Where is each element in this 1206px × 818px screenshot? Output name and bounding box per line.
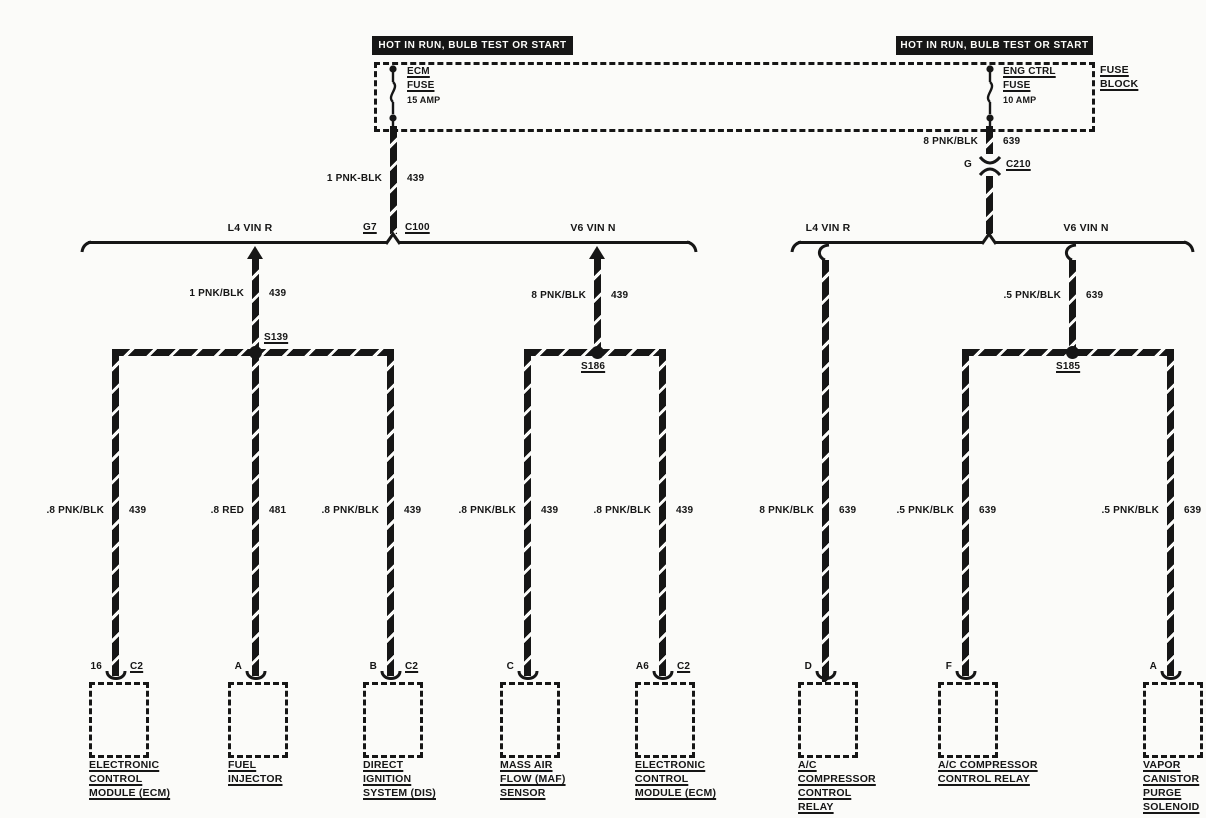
wire-label-gauge: .5 PNK/BLK [1003,290,1061,301]
c100-pin-label: G7 [363,222,377,233]
connector-hook-icon [1061,243,1079,261]
fuse-block-label-line1: FUSE [1100,64,1129,76]
pin-label: B [370,661,377,672]
pin-label: 16 [90,661,102,672]
eng-ctrl-fuse-name-line1: ENG CTRL [1003,66,1056,77]
wire-label-gauge: .8 RED [211,505,244,516]
wire-label-circuit: 639 [1003,136,1020,147]
power-source-banner-left: HOT IN RUN, BULB TEST OR START [372,36,573,55]
wire-label-gauge: .8 PNK/BLK [458,505,516,516]
wire-label-circuit: 439 [611,290,628,301]
component-label-vapor-solenoid: VAPOR CANISTOR PURGE SOLENOID [1143,758,1199,814]
wire-dis [387,349,394,676]
wire-label-circuit: 481 [269,505,286,516]
component-box-maf [500,682,560,758]
wire-label-gauge: 8 PNK/BLK [531,290,586,301]
wire-ecm1 [112,349,119,676]
wire-eng-ctrl-feed-lower [986,176,993,234]
wire-label-gauge: 1 PNK-BLK [327,173,382,184]
component-box-ecm1 [89,682,149,758]
fuse-icon-eng-ctrl [982,62,998,128]
c210-id-label: C210 [1006,159,1031,170]
component-label-ecm1: ELECTRONIC CONTROL MODULE (ECM) [89,758,170,800]
wire-label-gauge: .5 PNK/BLK [1101,505,1159,516]
wire-label-gauge: .8 PNK/BLK [46,505,104,516]
wire-label-circuit: 439 [404,505,421,516]
c210-connector-icon [978,150,1002,178]
wire-vapor-solenoid [1167,349,1174,676]
component-label-ac-relay-2: A/C COMPRESSOR CONTROL RELAY [938,758,1038,786]
bus-end-curl [1184,240,1196,253]
wire-label-circuit: 439 [676,505,693,516]
wire-label-circuit: 439 [129,505,146,516]
wire-label-circuit: 439 [541,505,558,516]
component-box-fuel-injector [228,682,288,758]
fuse-icon-ecm [385,62,401,128]
component-box-ac-relay-1 [798,682,858,758]
wire-label-gauge: 8 PNK/BLK [923,136,978,147]
eng-ctrl-fuse-name-line2: FUSE [1003,80,1030,91]
wire-label-circuit: 439 [269,288,286,299]
component-box-ac-relay-2 [938,682,998,758]
pin-label: A [1150,661,1157,672]
wire-label-gauge: .8 PNK/BLK [593,505,651,516]
ecm-fuse-rating: 15 AMP [407,95,440,105]
wire-label-circuit: 639 [839,505,856,516]
component-box-dis [363,682,423,758]
wire-label-gauge: .8 PNK/BLK [321,505,379,516]
pin-label: A [235,661,242,672]
wire-v6-branch [594,258,601,349]
component-box-vapor-solenoid [1143,682,1203,758]
component-label-ecm2: ELECTRONIC CONTROL MODULE (ECM) [635,758,716,800]
branch-label-l4-right: L4 VIN R [806,222,851,234]
pin-label: A6 [636,661,649,672]
branch-label-l4-left: L4 VIN R [228,222,273,234]
splice-dot-s185 [1066,346,1079,359]
c210-pin-label: G [964,159,972,170]
wire-v6-right-branch [1069,260,1076,349]
pin-label: D [805,661,812,672]
connector-id-label: C2 [677,661,690,672]
wire-label-circuit: 639 [979,505,996,516]
wire-ac-relay-f [962,349,969,676]
connector-id-label: C2 [130,661,143,672]
component-label-ac-relay-1: A/C COMPRESSOR CONTROL RELAY [798,758,876,814]
wire-l4-branch [252,258,259,349]
component-label-fuel-injector: FUEL INJECTOR [228,758,283,786]
connector-hook-icon [814,243,832,261]
wire-ecm2 [659,349,666,676]
bus-end-curl [687,240,699,253]
wire-maf [524,349,531,676]
component-box-ecm2 [635,682,695,758]
ecm-fuse-name-line2: FUSE [407,80,434,91]
wire-label-gauge: 1 PNK/BLK [189,288,244,299]
ecm-fuse-name-line1: ECM [407,66,430,77]
splice-label-s186: S186 [581,361,605,372]
wire-label-gauge: 8 PNK/BLK [759,505,814,516]
wire-fuel-injector [252,349,259,676]
connector-id-label: C2 [405,661,418,672]
wire-ac-relay-d [822,260,829,682]
c100-notch [385,232,401,245]
c210-notch [981,232,997,245]
pin-label: F [946,661,952,672]
branch-label-v6-left: V6 VIN N [570,222,615,234]
splice-label-s139: S139 [264,332,288,343]
wire-label-circuit: 639 [1184,505,1201,516]
wiring-diagram: HOT IN RUN, BULB TEST OR START HOT IN RU… [0,0,1206,818]
bus-end-curl [789,240,801,253]
wire-ecm-fuse-feed [390,126,397,234]
wire-label-circuit: 639 [1086,290,1103,301]
eng-ctrl-fuse-rating: 10 AMP [1003,95,1036,105]
component-label-dis: DIRECT IGNITION SYSTEM (DIS) [363,758,436,800]
bus-end-curl [79,240,91,253]
fuse-block-label-line2: BLOCK [1100,78,1138,90]
pin-label: C [507,661,514,672]
wire-label-circuit: 439 [407,173,424,184]
power-source-banner-right: HOT IN RUN, BULB TEST OR START [896,36,1093,55]
splice-label-s185: S185 [1056,361,1080,372]
wire-label-gauge: .5 PNK/BLK [896,505,954,516]
branch-label-v6-right: V6 VIN N [1063,222,1108,234]
component-label-maf: MASS AIR FLOW (MAF) SENSOR [500,758,566,800]
c100-id-label: C100 [405,222,430,233]
splice-dot-s186 [591,346,604,359]
